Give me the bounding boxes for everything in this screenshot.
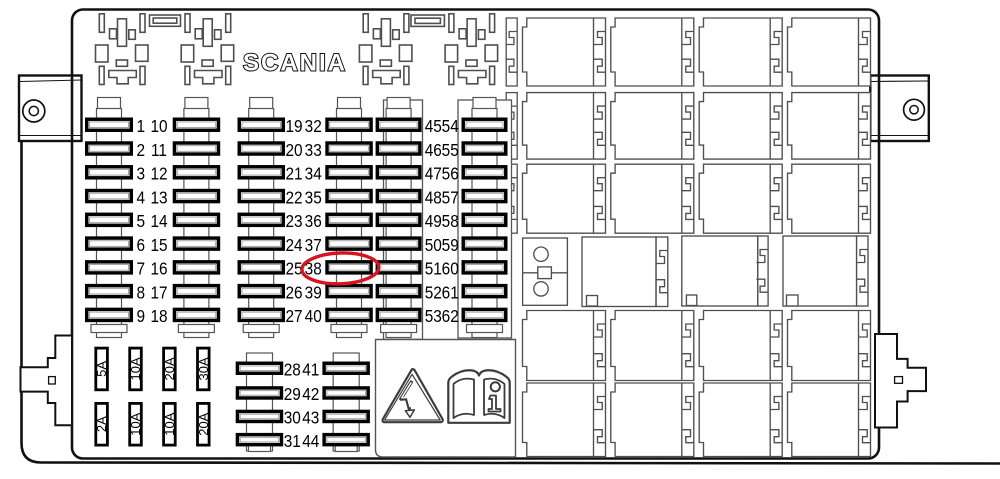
svg-text:33: 33	[305, 141, 322, 160]
svg-text:40: 40	[305, 307, 322, 326]
svg-text:5: 5	[137, 212, 146, 231]
svg-text:21: 21	[285, 165, 302, 184]
svg-text:41: 41	[302, 361, 319, 380]
svg-text:24: 24	[285, 236, 302, 255]
svg-text:30A: 30A	[196, 357, 211, 380]
svg-text:17: 17	[150, 284, 167, 303]
svg-text:26: 26	[285, 284, 302, 303]
svg-text:SCANIA: SCANIA	[243, 50, 347, 77]
svg-text:45: 45	[425, 117, 442, 136]
svg-text:59: 59	[442, 236, 459, 255]
svg-text:12: 12	[150, 165, 167, 184]
svg-text:58: 58	[442, 212, 459, 231]
svg-text:50: 50	[425, 236, 442, 255]
svg-text:62: 62	[442, 307, 459, 326]
svg-text:20A: 20A	[162, 357, 177, 380]
svg-text:44: 44	[302, 432, 319, 451]
svg-text:35: 35	[305, 188, 322, 207]
svg-text:10: 10	[150, 117, 167, 136]
svg-text:2: 2	[137, 141, 146, 160]
svg-text:22: 22	[285, 188, 302, 207]
svg-text:43: 43	[302, 409, 319, 428]
svg-text:32: 32	[305, 117, 322, 136]
svg-text:20: 20	[285, 141, 302, 160]
svg-text:25: 25	[285, 260, 302, 279]
svg-text:56: 56	[442, 165, 459, 184]
svg-text:1: 1	[137, 117, 146, 136]
svg-text:10A: 10A	[128, 357, 143, 380]
svg-text:23: 23	[285, 212, 302, 231]
svg-text:6: 6	[137, 236, 146, 255]
svg-text:47: 47	[425, 165, 442, 184]
svg-text:3: 3	[137, 165, 146, 184]
svg-text:54: 54	[442, 117, 459, 136]
svg-text:15: 15	[150, 236, 167, 255]
svg-text:48: 48	[425, 188, 442, 207]
svg-text:28: 28	[284, 361, 301, 380]
svg-text:14: 14	[150, 212, 167, 231]
svg-text:51: 51	[425, 260, 442, 279]
svg-text:42: 42	[302, 385, 319, 404]
svg-text:27: 27	[285, 307, 302, 326]
svg-text:11: 11	[151, 141, 167, 160]
svg-text:16: 16	[150, 260, 167, 279]
svg-text:7: 7	[137, 260, 146, 279]
svg-text:8: 8	[137, 284, 146, 303]
svg-text:10A: 10A	[128, 412, 143, 435]
svg-text:20A: 20A	[196, 412, 211, 435]
svg-text:19: 19	[285, 117, 302, 136]
svg-text:61: 61	[442, 284, 459, 303]
svg-text:30: 30	[284, 409, 301, 428]
svg-text:29: 29	[284, 385, 301, 404]
svg-text:34: 34	[305, 165, 322, 184]
svg-text:18: 18	[150, 307, 167, 326]
svg-text:2A: 2A	[94, 416, 109, 432]
svg-text:46: 46	[425, 141, 442, 160]
svg-text:55: 55	[442, 141, 459, 160]
svg-text:52: 52	[425, 284, 442, 303]
svg-text:53: 53	[425, 307, 442, 326]
svg-text:4: 4	[137, 188, 146, 207]
svg-text:10A: 10A	[162, 412, 177, 435]
svg-text:9: 9	[137, 307, 146, 326]
svg-text:39: 39	[305, 284, 322, 303]
svg-text:13: 13	[150, 188, 167, 207]
svg-text:31: 31	[284, 432, 301, 451]
svg-text:36: 36	[305, 212, 322, 231]
svg-text:49: 49	[425, 212, 442, 231]
svg-text:57: 57	[442, 188, 459, 207]
svg-text:5A: 5A	[94, 361, 109, 377]
svg-text:60: 60	[442, 260, 459, 279]
svg-text:37: 37	[305, 236, 322, 255]
